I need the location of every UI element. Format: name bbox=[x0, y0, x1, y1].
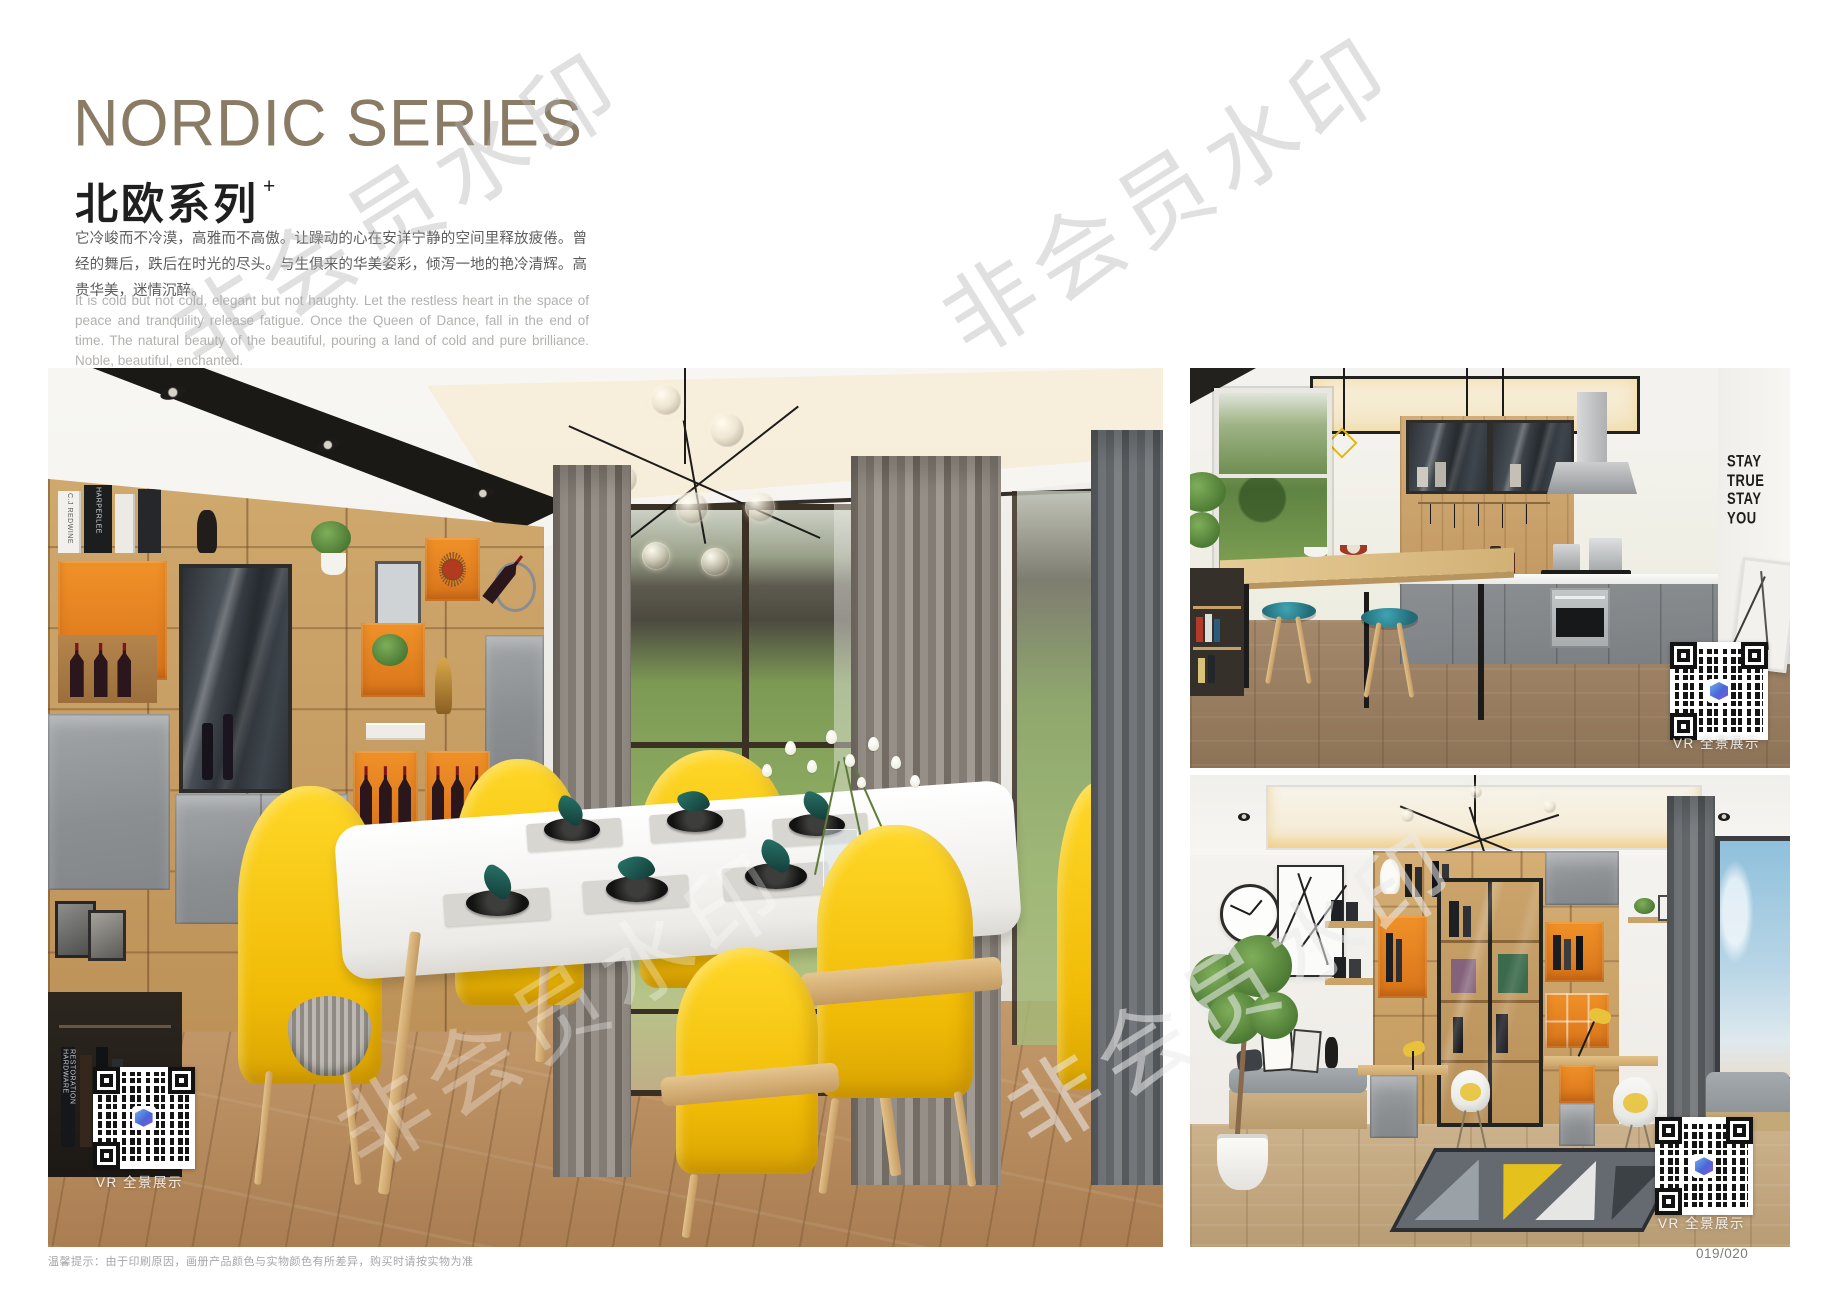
jar bbox=[1510, 464, 1521, 487]
striped-jar bbox=[288, 996, 372, 1075]
utensil-rail bbox=[1418, 502, 1550, 504]
range-hood bbox=[1547, 462, 1637, 494]
orange-cubby bbox=[1545, 922, 1604, 982]
book bbox=[1331, 900, 1343, 921]
wall-clock bbox=[1220, 884, 1280, 944]
wine-bottle bbox=[94, 643, 108, 697]
book-spine: HARPERLEE bbox=[94, 487, 101, 534]
catalog-page: NORDIC SERIES 北欧系列+ 它冷峻而不冷漠，高雅而不高傲。让躁动的心… bbox=[0, 0, 1836, 1307]
floating-shelf bbox=[1325, 921, 1373, 928]
vr-qr-code[interactable] bbox=[1655, 1117, 1753, 1215]
flower bbox=[845, 754, 855, 767]
small-plant bbox=[1634, 898, 1655, 915]
sketch-line bbox=[1761, 571, 1770, 650]
sky-window bbox=[1715, 836, 1790, 1082]
chandelier-bulb bbox=[701, 548, 729, 576]
hanging-utensil bbox=[1502, 504, 1503, 528]
lamp-stem bbox=[1412, 1051, 1414, 1070]
flower bbox=[826, 730, 837, 744]
window-seat-cushion bbox=[1706, 1072, 1790, 1114]
vr-label: VR 全景展示 bbox=[96, 1171, 183, 1191]
book bbox=[1405, 864, 1412, 897]
book bbox=[1415, 867, 1422, 897]
flower bbox=[762, 764, 772, 777]
book bbox=[1349, 959, 1361, 978]
qr-finder bbox=[1670, 642, 1697, 669]
plant-pot bbox=[1217, 1134, 1268, 1191]
book bbox=[1196, 617, 1202, 643]
flower bbox=[785, 741, 796, 755]
plant bbox=[372, 634, 408, 666]
hood-chimney bbox=[1577, 392, 1607, 464]
chandelier-stem bbox=[1474, 775, 1476, 823]
intro-paragraph-en: It is cold but not cold, elegant but not… bbox=[75, 291, 589, 371]
book bbox=[1386, 933, 1393, 982]
qr-finder bbox=[168, 1067, 195, 1094]
orange-cubby bbox=[425, 538, 480, 600]
bench-cushion bbox=[1229, 1068, 1367, 1094]
shelf-board bbox=[59, 1025, 171, 1028]
table-leg-metal bbox=[1478, 584, 1484, 720]
book bbox=[115, 494, 136, 553]
chandelier-bulb bbox=[1401, 809, 1414, 822]
book bbox=[1346, 902, 1358, 921]
spotlight bbox=[1718, 813, 1730, 821]
book: RESTORATION HARDWARE bbox=[61, 1047, 74, 1147]
chandelier-bulb bbox=[745, 492, 775, 522]
shelf-board bbox=[1193, 647, 1241, 650]
black-vase bbox=[1325, 1037, 1338, 1068]
chandelier-bulb bbox=[642, 542, 670, 570]
chandelier-bulb bbox=[1470, 786, 1482, 798]
chair-leg bbox=[954, 1091, 977, 1187]
chandelier-stem bbox=[684, 368, 686, 464]
clock-hand bbox=[1249, 900, 1262, 915]
wine-bottle bbox=[70, 643, 84, 697]
glass-display-cabinet bbox=[179, 564, 291, 793]
footer-disclaimer: 温馨提示：由于印刷原因，画册产品颜色与实物颜色有所差异，购买时请按实物为准 bbox=[48, 1253, 474, 1269]
open-shelf-unit bbox=[1190, 568, 1244, 696]
dining-room-photo: C.J REDWINE HARPERLEE bbox=[48, 368, 1163, 1247]
jar bbox=[1435, 462, 1446, 486]
chandelier-bulb bbox=[710, 413, 744, 447]
hanging-utensil bbox=[1430, 504, 1431, 524]
vr-label: VR 全景展示 bbox=[1658, 1212, 1745, 1232]
desk-drawer-unit bbox=[1370, 1075, 1418, 1139]
orange-cubby bbox=[1378, 916, 1427, 998]
window-bench bbox=[1229, 1068, 1367, 1129]
rug-triangle bbox=[1415, 1159, 1511, 1219]
white-books bbox=[366, 723, 426, 740]
book-row: C.J REDWINE HARPERLEE bbox=[58, 485, 187, 553]
desk-left bbox=[1358, 1065, 1448, 1074]
picture-frame bbox=[88, 910, 126, 961]
upper-glass-cabinets bbox=[1406, 420, 1568, 488]
page-title: NORDIC SERIES bbox=[73, 86, 583, 161]
wall-quote-line: STAY bbox=[1727, 452, 1764, 471]
book bbox=[1396, 939, 1403, 982]
plant-foliage bbox=[1250, 992, 1298, 1039]
vr-qr-code[interactable] bbox=[93, 1067, 195, 1169]
leaning-frame bbox=[1290, 1029, 1322, 1073]
book bbox=[1564, 939, 1571, 970]
qr-finder bbox=[1726, 1117, 1753, 1144]
yellow-armchair bbox=[661, 948, 839, 1238]
bowl bbox=[1304, 547, 1328, 557]
hanging-utensil bbox=[1454, 504, 1455, 528]
oven-window bbox=[1556, 608, 1604, 637]
wall-quote-line: YOU bbox=[1727, 509, 1764, 528]
shelf-board bbox=[1193, 606, 1241, 609]
flower bbox=[891, 756, 901, 769]
book bbox=[1214, 619, 1220, 642]
teal-bar-stool bbox=[1361, 608, 1418, 627]
book-spine: C.J REDWINE bbox=[66, 493, 73, 544]
book bbox=[1205, 614, 1211, 642]
built-in-oven bbox=[1550, 588, 1610, 648]
plant bbox=[311, 521, 351, 555]
shelf-cubby bbox=[58, 635, 157, 703]
watermark: 非会员水印 bbox=[914, 0, 1417, 382]
plate-stack bbox=[667, 809, 723, 832]
vr-label: VR 全景展示 bbox=[1673, 732, 1760, 752]
book bbox=[1334, 957, 1346, 978]
jar bbox=[1417, 467, 1428, 487]
pendant-wire bbox=[1343, 368, 1345, 436]
book bbox=[1576, 936, 1583, 970]
book: C.J REDWINE bbox=[58, 491, 81, 552]
bench-base bbox=[1229, 1090, 1367, 1129]
flower bbox=[807, 760, 817, 773]
book bbox=[80, 1055, 92, 1147]
geometric-rug bbox=[1390, 1148, 1688, 1232]
pot bbox=[1589, 538, 1622, 572]
chandelier-bulb bbox=[651, 385, 681, 415]
flower bbox=[910, 775, 920, 787]
pot bbox=[1553, 544, 1580, 572]
gray-cabinet-door bbox=[48, 714, 170, 890]
desk-drawer-unit bbox=[1559, 1103, 1595, 1145]
kitchen-photo: STAY TRUE STAY YOU bbox=[1190, 368, 1790, 768]
wine-bottle bbox=[117, 643, 131, 697]
chair-cushion bbox=[1623, 1093, 1648, 1113]
kitchen-window bbox=[1214, 388, 1332, 574]
vase bbox=[197, 510, 217, 553]
armchair-back bbox=[676, 948, 819, 1174]
bottle bbox=[223, 714, 233, 780]
wall-quote-line: STAY bbox=[1727, 490, 1764, 509]
curtain-far-right bbox=[1091, 430, 1163, 1186]
shell-chair bbox=[1451, 1070, 1490, 1112]
wine-holder bbox=[490, 550, 535, 612]
wall-quote-line: TRUE bbox=[1727, 471, 1764, 490]
teal-bar-stool bbox=[1262, 602, 1316, 620]
art-line bbox=[1297, 873, 1328, 964]
page-subtitle-cn: 北欧系列+ bbox=[75, 170, 278, 232]
wine-bottle bbox=[379, 766, 392, 831]
subtitle-text: 北欧系列 bbox=[75, 181, 259, 229]
glass-reflection bbox=[183, 568, 287, 789]
qr-finder bbox=[93, 1067, 120, 1094]
book bbox=[1208, 655, 1214, 683]
flower-bouquet bbox=[750, 728, 940, 833]
hanging-utensil bbox=[1478, 504, 1479, 526]
countertop bbox=[1400, 574, 1724, 584]
qr-logo-cube bbox=[1692, 1154, 1716, 1178]
table-leg-metal bbox=[1244, 584, 1249, 688]
gray-cabinet-door bbox=[1545, 851, 1619, 906]
hanging-utensil bbox=[1526, 504, 1527, 524]
book bbox=[1198, 658, 1206, 684]
bust-decor bbox=[1380, 859, 1400, 895]
shell-chair bbox=[1613, 1077, 1658, 1127]
floating-shelf bbox=[1325, 978, 1373, 985]
chair-cushion bbox=[1460, 1083, 1482, 1101]
plant-pot bbox=[321, 553, 346, 576]
vr-qr-code[interactable] bbox=[1670, 642, 1768, 740]
photo-frame bbox=[375, 561, 421, 629]
wall-quote: STAY TRUE STAY YOU bbox=[1727, 452, 1764, 528]
qr-finder bbox=[1655, 1117, 1682, 1144]
book: HARPERLEE bbox=[84, 485, 112, 553]
oven-handle bbox=[1555, 596, 1605, 599]
book bbox=[1553, 935, 1560, 970]
book-spine: RESTORATION HARDWARE bbox=[61, 1049, 75, 1147]
spotlight bbox=[1238, 813, 1250, 821]
flower bbox=[868, 737, 879, 751]
qr-logo-cube bbox=[1707, 679, 1731, 703]
chandelier-bulb bbox=[676, 492, 708, 524]
glass-door bbox=[1406, 420, 1490, 494]
orange-cubby bbox=[361, 623, 426, 697]
sunburst-decor bbox=[439, 552, 466, 587]
desk-cubby-orange bbox=[1559, 1065, 1595, 1103]
plant-foliage bbox=[1226, 935, 1292, 996]
qr-finder bbox=[93, 1142, 120, 1169]
rug-triangle bbox=[1587, 1165, 1665, 1219]
page-number: 019/020 bbox=[1696, 1246, 1748, 1261]
study-room-photo: VR 全景展示 bbox=[1190, 775, 1790, 1247]
chair-leg bbox=[682, 1174, 699, 1238]
qr-finder bbox=[1741, 642, 1768, 669]
qr-logo-cube bbox=[132, 1106, 156, 1130]
subtitle-superscript: + bbox=[263, 175, 278, 198]
clock-hand bbox=[1230, 905, 1250, 916]
trophy-figurine bbox=[435, 657, 452, 714]
chandelier-bulb bbox=[1543, 800, 1556, 813]
book bbox=[138, 489, 161, 553]
window-mullion bbox=[1219, 474, 1327, 478]
bottle bbox=[202, 723, 212, 780]
cubby bbox=[1559, 1065, 1595, 1103]
gray-cabinet-door bbox=[485, 635, 545, 771]
flower bbox=[857, 777, 866, 788]
